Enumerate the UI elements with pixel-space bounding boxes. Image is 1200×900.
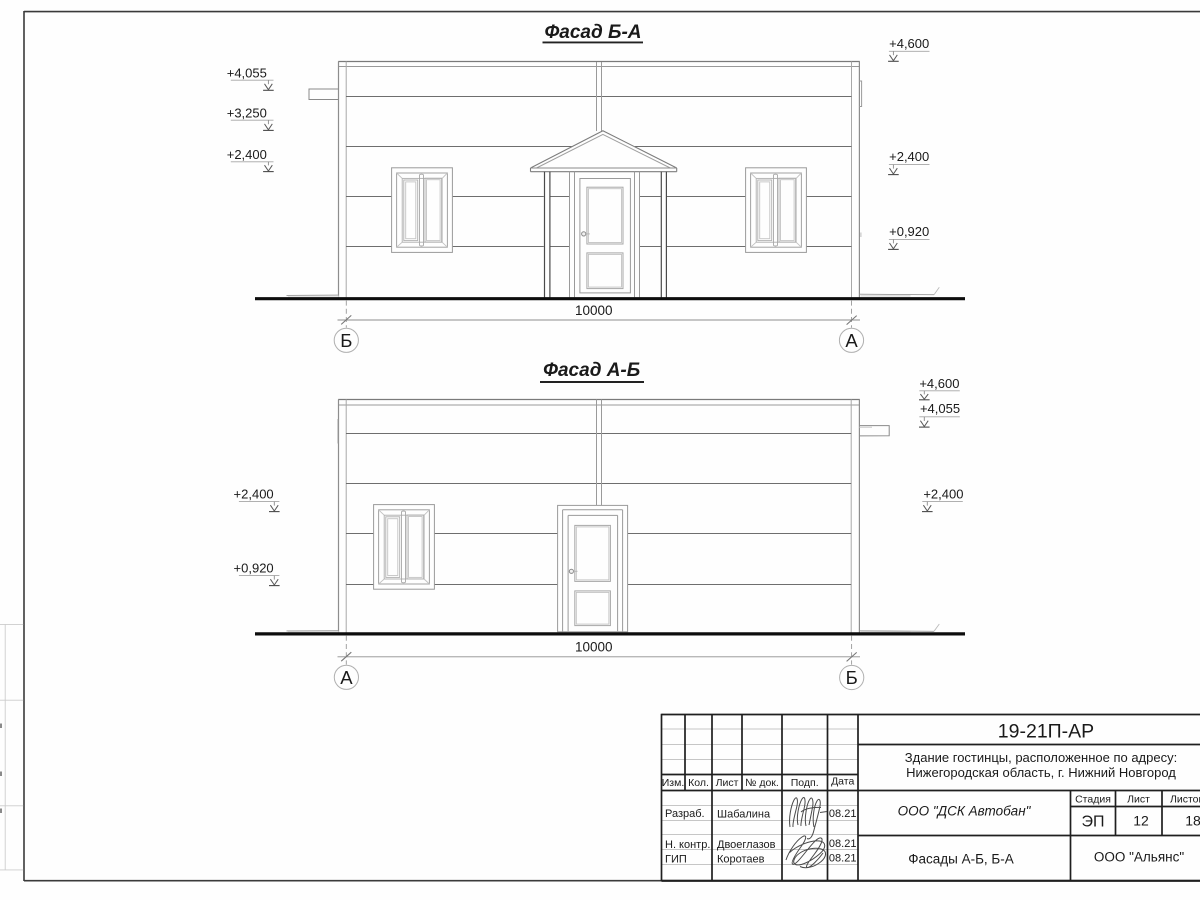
- svg-text:08.21: 08.21: [829, 808, 857, 820]
- svg-text:+2,400: +2,400: [234, 486, 274, 501]
- svg-text:18: 18: [1185, 813, 1200, 829]
- svg-text:+2,400: +2,400: [227, 147, 267, 162]
- svg-text:+4,600: +4,600: [919, 376, 959, 391]
- svg-text:№ док.: № док.: [745, 777, 779, 789]
- svg-text:10000: 10000: [575, 303, 613, 318]
- svg-text:А: А: [845, 330, 858, 351]
- svg-text:Б: Б: [846, 667, 858, 688]
- svg-text:Подп.: Подп.: [791, 777, 819, 789]
- svg-text:Стадия: Стадия: [1075, 794, 1111, 806]
- svg-text:+0,920: +0,920: [889, 224, 929, 239]
- svg-text:+3,250: +3,250: [227, 106, 267, 121]
- svg-text:Шабалина: Шабалина: [717, 809, 771, 821]
- svg-text:Разраб.: Разраб.: [665, 808, 705, 820]
- svg-text:+2,400: +2,400: [923, 486, 963, 501]
- svg-text:+4,600: +4,600: [889, 36, 929, 51]
- svg-text:Фасады А-Б, Б-А: Фасады А-Б, Б-А: [908, 852, 1014, 867]
- svg-text:Б: Б: [340, 330, 352, 351]
- svg-text:Лист: Лист: [716, 777, 739, 789]
- svg-text:Н. контр.: Н. контр.: [665, 839, 710, 851]
- svg-text:Фасад А-Б: Фасад А-Б: [543, 360, 640, 381]
- svg-text:+0,920: +0,920: [234, 561, 274, 576]
- svg-text:ООО "ДСК Автобан": ООО "ДСК Автобан": [898, 804, 1032, 819]
- svg-text:19-21П-АР: 19-21П-АР: [998, 721, 1094, 743]
- svg-text:+2,400: +2,400: [889, 149, 929, 164]
- svg-text:08.21: 08.21: [829, 853, 857, 865]
- svg-text:Двоеглазов: Двоеглазов: [717, 839, 776, 851]
- svg-text:ООО "Альянс": ООО "Альянс": [1094, 850, 1184, 865]
- svg-text:10000: 10000: [575, 640, 613, 655]
- svg-text:Листов: Листов: [1170, 794, 1200, 806]
- svg-text:+4,055: +4,055: [227, 66, 267, 81]
- svg-text:Изм.: Изм.: [662, 777, 685, 789]
- svg-text:ЭП: ЭП: [1082, 814, 1105, 831]
- svg-text:08.21: 08.21: [829, 838, 857, 850]
- svg-text:Кол.: Кол.: [688, 777, 709, 789]
- svg-text:Коротаев: Коротаев: [717, 854, 765, 866]
- svg-text:Лист: Лист: [1127, 794, 1150, 806]
- svg-text:Дата: Дата: [831, 776, 854, 788]
- svg-text:12: 12: [1133, 813, 1149, 829]
- svg-text:Здание гостинцы, расположенное: Здание гостинцы, расположенное по адресу…: [905, 750, 1177, 765]
- svg-text:+4,055: +4,055: [920, 401, 960, 416]
- svg-text:ГИП: ГИП: [665, 854, 687, 866]
- svg-text:Нижегородская область, г. Нижн: Нижегородская область, г. Нижний Новгоро…: [906, 765, 1176, 780]
- svg-text:Фасад Б-А: Фасад Б-А: [544, 22, 641, 43]
- svg-text:А: А: [340, 667, 353, 688]
